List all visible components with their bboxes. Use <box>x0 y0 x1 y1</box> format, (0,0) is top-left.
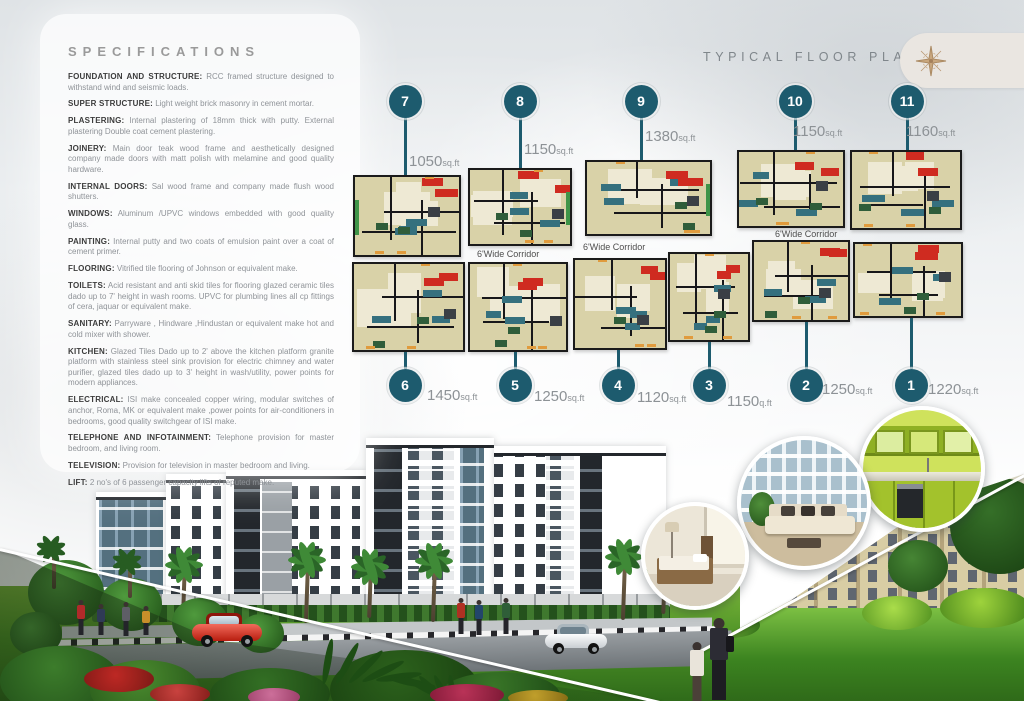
fern-leaf <box>361 658 405 684</box>
unit-plan <box>668 252 750 342</box>
unit-stem <box>640 117 643 160</box>
apartment-block-1 <box>166 474 226 610</box>
pedestrian <box>95 604 107 634</box>
spec-item: FOUNDATION AND STRUCTURE: RCC framed str… <box>68 72 334 93</box>
spec-item: TELEPHONE AND INFOTAINMENT: Telephone pr… <box>68 433 334 454</box>
unit-area-label: 1250sq.ft <box>534 388 584 405</box>
bedroom-photo <box>641 502 749 610</box>
flower-cluster <box>248 688 300 701</box>
unit-plan <box>853 242 963 318</box>
unit-stem <box>708 342 711 369</box>
fern-leaf <box>347 648 385 685</box>
unit-stem <box>404 352 407 369</box>
unit-number-marker: 6 <box>389 369 422 402</box>
red-car <box>192 606 262 648</box>
unit-number-marker: 11 <box>891 85 924 118</box>
unit-area-label: 1150sq.ft <box>524 141 573 158</box>
north-indicator-pill <box>900 33 1024 88</box>
pedestrian <box>455 598 467 634</box>
spec-item: PAINTING: Internal putty and two coats o… <box>68 237 334 258</box>
fern-leaf <box>320 638 335 685</box>
apartment-block-2 <box>226 470 366 610</box>
walking-man <box>706 618 732 701</box>
unit-area-label: 1450sq.ft <box>427 387 477 404</box>
living-room-photo <box>737 436 871 570</box>
unit-number-marker: 4 <box>602 369 635 402</box>
spec-item: JOINERY: Main door teak wood frame and a… <box>68 144 334 176</box>
spec-item: TOILETS: Acid resistant and anti skid ti… <box>68 281 334 313</box>
corridor-label: 6'Wide Corridor <box>583 242 645 252</box>
glass-building <box>96 492 166 610</box>
pedestrian <box>500 598 512 634</box>
road <box>26 630 733 682</box>
corridor-label: 6'Wide Corridor <box>775 229 837 239</box>
fern-leaf <box>446 674 459 701</box>
spec-item: SANITARY: Parryware , Hindware ,Hindusta… <box>68 319 334 340</box>
foreground-bush <box>90 660 200 701</box>
unit-plan <box>573 258 667 350</box>
unit-plan <box>737 150 845 228</box>
spec-item: LIFT: 2 no's of 6 passenger capacity lif… <box>68 478 334 489</box>
pedestrian <box>473 600 485 634</box>
unit-stem <box>910 318 913 369</box>
unit-number-marker: 7 <box>389 85 422 118</box>
fern-leaf <box>376 670 423 683</box>
unit-area-label: 1160sq.ft <box>906 123 955 140</box>
right-photo-edge-line <box>700 473 1024 652</box>
garden-tree <box>238 614 284 653</box>
unit-stem <box>617 350 620 369</box>
unit-plan <box>850 150 962 230</box>
unit-area-label: 1150sq.ft <box>793 123 842 140</box>
spec-item: ELECTRICAL: ISI make concealed copper wi… <box>68 395 334 427</box>
lawn <box>0 586 740 701</box>
specifications-list: FOUNDATION AND STRUCTURE: RCC framed str… <box>68 72 334 488</box>
spec-item: SUPER STRUCTURE: Light weight brick maso… <box>68 99 334 110</box>
foreground-bush <box>330 650 480 701</box>
specifications-panel: SPECIFICATIONS FOUNDATION AND STRUCTURE:… <box>40 14 360 472</box>
spec-item: FLOORING: Vitrified tile flooring of Joh… <box>68 264 334 275</box>
apartment-block-3 <box>494 446 666 610</box>
spec-item: KITCHEN: Glazed Tiles Dado up to 2' abov… <box>68 347 334 389</box>
foreground-bush <box>440 672 560 701</box>
pedestrian <box>140 606 152 634</box>
unit-area-label: 1380sq.ft <box>645 128 695 145</box>
unit-number-marker: 2 <box>790 369 823 402</box>
flower-cluster <box>84 666 154 692</box>
unit-area-label: 1250sq.ft <box>822 381 872 398</box>
spec-item: PLASTERING: Internal plastering of 18mm … <box>68 116 334 137</box>
walking-child <box>688 642 706 701</box>
compass-rose-icon <box>913 43 949 79</box>
fern-leaf <box>417 674 454 701</box>
unit-plan <box>752 240 850 322</box>
diagonal-divider-line <box>0 548 662 701</box>
curb-stripes <box>56 626 716 646</box>
pedestrian <box>120 602 132 635</box>
garden-tree <box>100 578 162 631</box>
unit-number-marker: 10 <box>779 85 812 118</box>
unit-stem <box>404 117 407 175</box>
unit-stem <box>514 352 517 369</box>
unit-number-marker: 9 <box>625 85 658 118</box>
unit-stem <box>519 117 522 168</box>
floor-plan-title: TYPICAL FLOOR PLAN <box>703 50 920 64</box>
spec-item: INTERNAL DOORS: Sal wood frame and compa… <box>68 182 334 203</box>
unit-area-label: 1150q.ft <box>727 393 772 410</box>
flower-cluster <box>508 690 568 701</box>
flower-cluster <box>430 684 504 701</box>
unit-number-marker: 1 <box>895 369 928 402</box>
unit-number-marker: 5 <box>499 369 532 402</box>
corridor-label: 6'Wide Corridor <box>477 249 539 259</box>
unit-area-label: 1050sq.ft <box>409 153 459 170</box>
brochure-page: SPECIFICATIONS FOUNDATION AND STRUCTURE:… <box>0 0 1024 701</box>
unit-number-marker: 3 <box>693 369 726 402</box>
garden-tree <box>172 598 228 646</box>
unit-number-marker: 8 <box>504 85 537 118</box>
apartment-tower <box>366 438 494 610</box>
unit-plan <box>468 168 572 246</box>
unit-plan <box>353 175 461 257</box>
hedge <box>92 605 670 622</box>
fern-leaf <box>431 674 457 701</box>
unit-plan <box>352 262 465 352</box>
fern-leaf <box>403 674 447 701</box>
pedestrian <box>75 600 87 634</box>
white-car <box>545 618 607 654</box>
foreground-bush <box>210 668 330 701</box>
fern-leaf <box>333 641 361 685</box>
sidewalk <box>62 617 712 638</box>
unit-area-label: 1220sq.ft <box>928 381 978 398</box>
boundary-wall <box>92 594 670 607</box>
garden-tree <box>28 560 104 625</box>
garden-tree <box>10 612 62 656</box>
specifications-title: SPECIFICATIONS <box>68 44 334 59</box>
unit-plan <box>585 160 712 236</box>
unit-area-label: 1120sq.ft <box>637 389 686 406</box>
kitchen-photo <box>859 406 985 532</box>
spec-item: WINDOWS: Aluminum /UPVC windows embedded… <box>68 209 334 230</box>
unit-plan <box>468 262 568 352</box>
spec-item: TELEVISION: Provision for television in … <box>68 461 334 472</box>
unit-stem <box>805 322 808 369</box>
flower-cluster <box>150 684 210 701</box>
foreground-bush <box>0 646 120 701</box>
fern-leaf <box>389 675 436 690</box>
